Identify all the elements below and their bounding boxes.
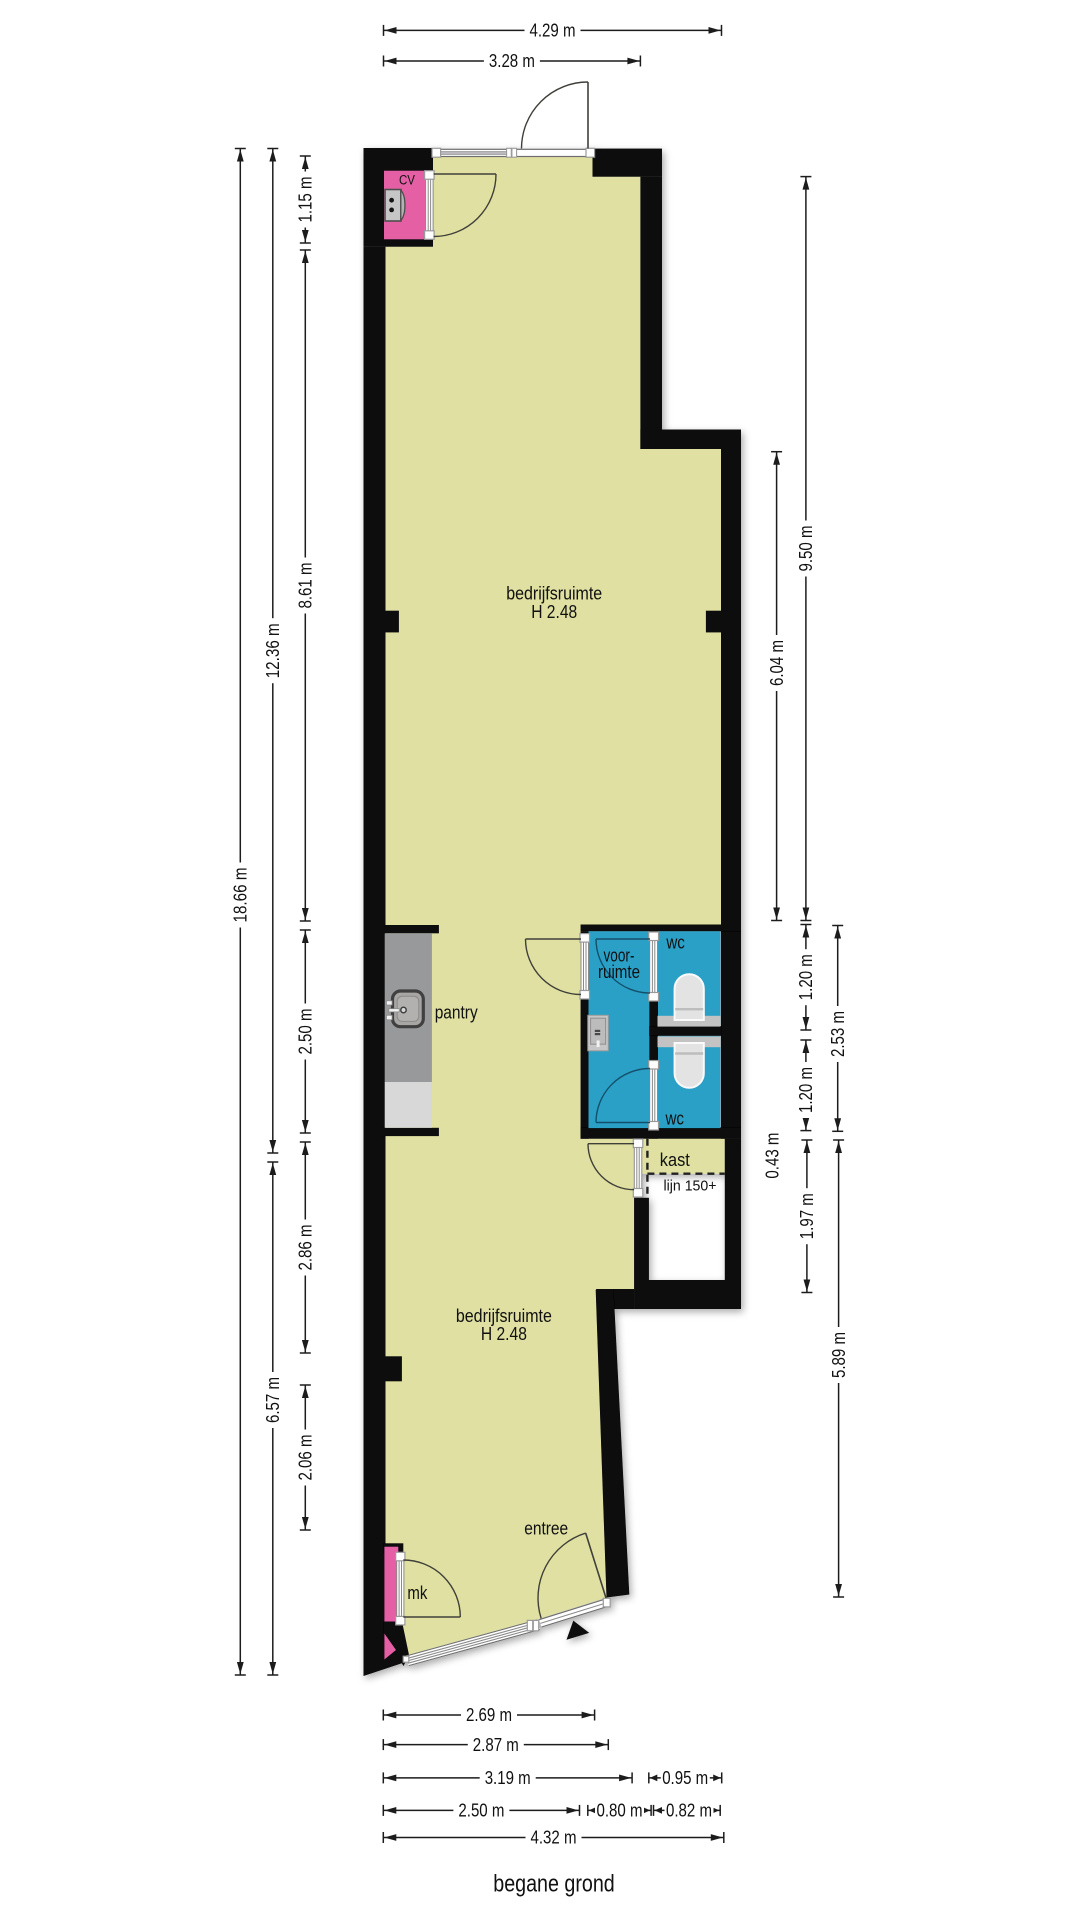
svg-text:lijn 150+: lijn 150+ [664,1177,717,1194]
svg-text:begane grond: begane grond [493,1870,615,1897]
svg-text:2.06 m: 2.06 m [296,1435,316,1481]
svg-text:3.19 m: 3.19 m [485,1768,531,1788]
svg-text:18.66 m: 18.66 m [231,868,251,923]
svg-text:kast: kast [660,1150,690,1170]
svg-text:12.36 m: 12.36 m [263,623,283,678]
svg-text:1.20 m: 1.20 m [796,1067,816,1113]
svg-text:wc: wc [665,1109,684,1129]
svg-text:pantry: pantry [435,1003,478,1023]
svg-text:entree: entree [524,1518,568,1538]
svg-text:5.89 m: 5.89 m [829,1332,849,1378]
svg-text:2.69 m: 2.69 m [466,1705,512,1725]
svg-text:0.43 m: 0.43 m [763,1133,783,1179]
svg-text:H 2.48: H 2.48 [481,1324,527,1344]
svg-text:2.53 m: 2.53 m [828,1011,848,1057]
svg-text:0.82 m: 0.82 m [666,1801,712,1821]
svg-text:mk: mk [407,1583,428,1603]
svg-text:0.95 m: 0.95 m [662,1768,708,1788]
svg-text:4.32 m: 4.32 m [531,1828,577,1848]
svg-text:9.50 m: 9.50 m [796,526,816,572]
svg-text:1.15 m: 1.15 m [296,177,316,223]
svg-text:H 2.48: H 2.48 [531,602,577,622]
svg-text:ruimte: ruimte [598,962,640,982]
svg-text:2.50 m: 2.50 m [296,1009,316,1055]
svg-text:6.57 m: 6.57 m [263,1377,283,1423]
svg-text:bedrijfsruimte: bedrijfsruimte [506,584,602,604]
svg-text:0.80 m: 0.80 m [597,1801,643,1821]
svg-text:1.97 m: 1.97 m [797,1193,817,1239]
svg-text:1.20 m: 1.20 m [796,954,816,1000]
svg-text:2.50 m: 2.50 m [458,1801,504,1821]
svg-text:bedrijfsruimte: bedrijfsruimte [456,1306,552,1326]
svg-text:8.61 m: 8.61 m [296,563,316,609]
svg-text:2.86 m: 2.86 m [296,1225,316,1271]
svg-text:wc: wc [666,933,685,953]
svg-text:3.28 m: 3.28 m [489,51,535,71]
svg-text:6.04 m: 6.04 m [767,640,787,686]
svg-text:4.29 m: 4.29 m [530,21,576,41]
svg-text:CV: CV [399,172,415,187]
svg-text:2.87 m: 2.87 m [473,1735,519,1755]
